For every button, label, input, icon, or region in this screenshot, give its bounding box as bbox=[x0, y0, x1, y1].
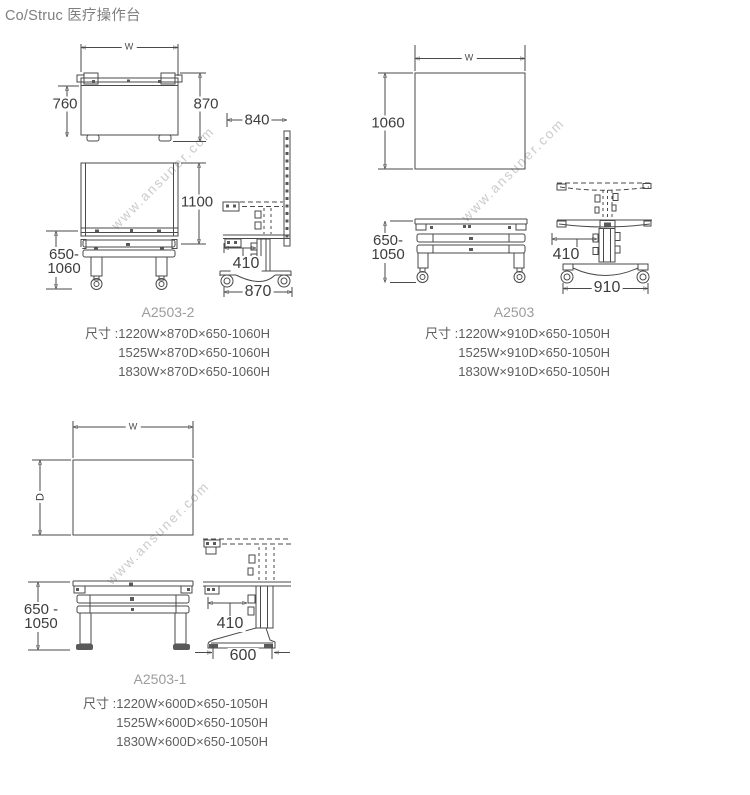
size-line: 1830W×870D×650-1060H bbox=[118, 362, 270, 381]
size-prefix: 尺寸 : bbox=[85, 324, 118, 381]
dim-label-board-height: 1100 bbox=[179, 195, 215, 210]
size-line: 1525W×600D×650-1050H bbox=[116, 713, 268, 732]
dim-label-top-depth: D bbox=[36, 491, 47, 503]
model-label: A2503-2 bbox=[142, 304, 195, 320]
dim-label-side-depth: 840 bbox=[242, 113, 271, 128]
dim-label-base-depth: 870 bbox=[243, 284, 274, 300]
a2503-2-plan-view bbox=[58, 44, 206, 142]
dim-label-height-range: 650- 1060 bbox=[45, 247, 82, 277]
size-listing: 尺寸 : 1220W×600D×650-1050H 1525W×600D×650… bbox=[83, 694, 268, 751]
dim-label-height-range: 650 - 1050 bbox=[22, 602, 60, 632]
size-line: 1220W×600D×650-1050H bbox=[116, 694, 268, 713]
size-prefix: 尺寸 : bbox=[83, 694, 116, 751]
dim-label-height-range: 650- 1050 bbox=[369, 233, 406, 263]
dim-label-top-depth: 760 bbox=[50, 97, 79, 112]
catalog-page: Co/Struc 医疗操作台 www.ansuner.com www.ansun… bbox=[0, 0, 750, 795]
page-title: Co/Struc 医疗操作台 bbox=[5, 4, 141, 25]
dim-label-top-depth: 1060 bbox=[369, 116, 406, 131]
a2503-side-view bbox=[552, 183, 652, 294]
size-prefix: 尺寸 : bbox=[425, 324, 458, 381]
size-line: 1220W×870D×650-1060H bbox=[118, 324, 270, 343]
dim-label-full-depth: 870 bbox=[191, 97, 220, 112]
dim-label-width: W bbox=[462, 54, 477, 63]
dim-label-base-depth: 600 bbox=[228, 648, 259, 664]
model-label: A2503 bbox=[494, 304, 534, 320]
dim-label-width: W bbox=[122, 43, 137, 52]
dim-label-reach: 410 bbox=[551, 247, 582, 263]
size-line: 1220W×910D×650-1050H bbox=[458, 324, 610, 343]
size-line: 1525W×910D×650-1050H bbox=[458, 343, 610, 362]
dim-label-reach: 410 bbox=[215, 616, 246, 632]
a2503-plan-view bbox=[378, 45, 525, 169]
size-line: 1830W×600D×650-1050H bbox=[116, 732, 268, 751]
dim-label-base-depth: 910 bbox=[592, 280, 623, 296]
model-label: A2503-1 bbox=[134, 671, 187, 687]
size-line: 1525W×870D×650-1060H bbox=[118, 343, 270, 362]
size-listing: 尺寸 : 1220W×910D×650-1050H 1525W×910D×650… bbox=[425, 324, 610, 381]
a2503-1-side-view bbox=[195, 539, 291, 659]
dim-label-width: W bbox=[126, 423, 141, 432]
dim-label-reach: 410 bbox=[231, 256, 262, 272]
size-listing: 尺寸 : 1220W×870D×650-1060H 1525W×870D×650… bbox=[85, 324, 270, 381]
a2503-1-plan-view bbox=[32, 421, 193, 535]
size-line: 1830W×910D×650-1050H bbox=[458, 362, 610, 381]
